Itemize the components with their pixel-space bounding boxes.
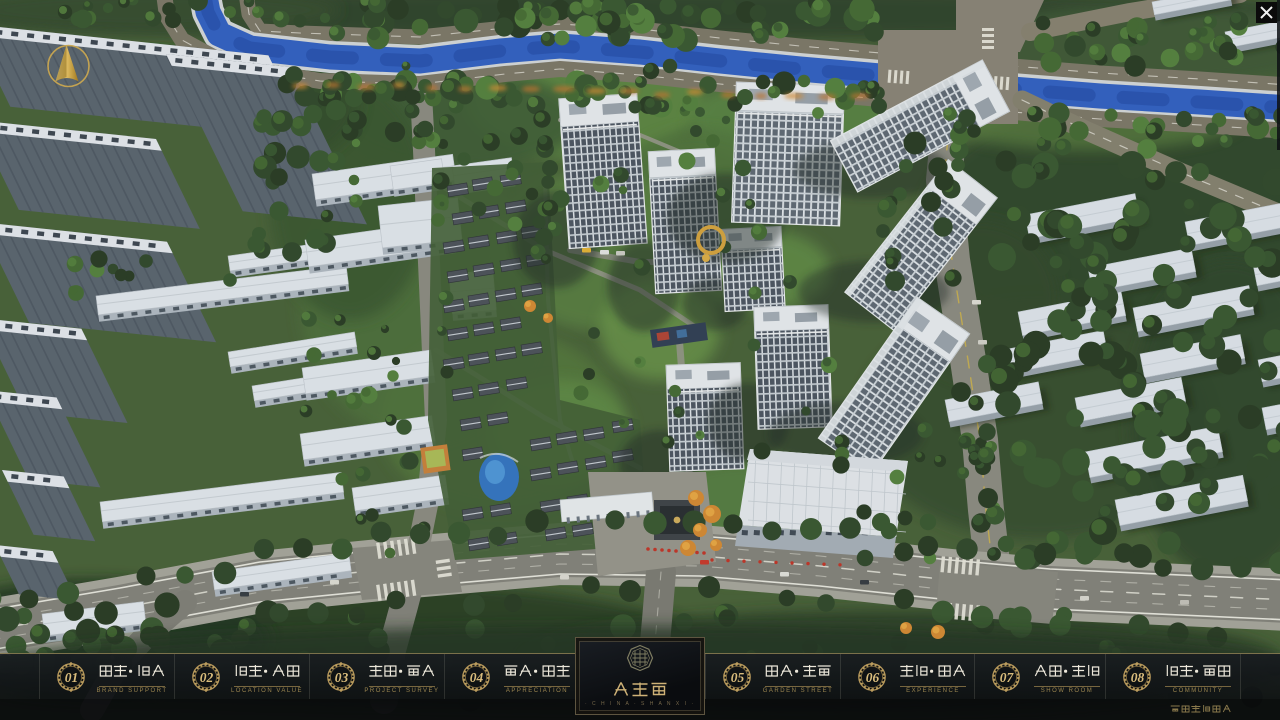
svg-text:08: 08	[1131, 670, 1145, 685]
svg-text:03: 03	[335, 670, 349, 685]
svg-text:07: 07	[1000, 670, 1015, 685]
svg-text:04: 04	[470, 670, 484, 685]
svg-text:06: 06	[866, 670, 880, 685]
svg-text:05: 05	[731, 670, 745, 685]
svg-text:01: 01	[65, 670, 79, 685]
svg-text:02: 02	[200, 670, 214, 685]
